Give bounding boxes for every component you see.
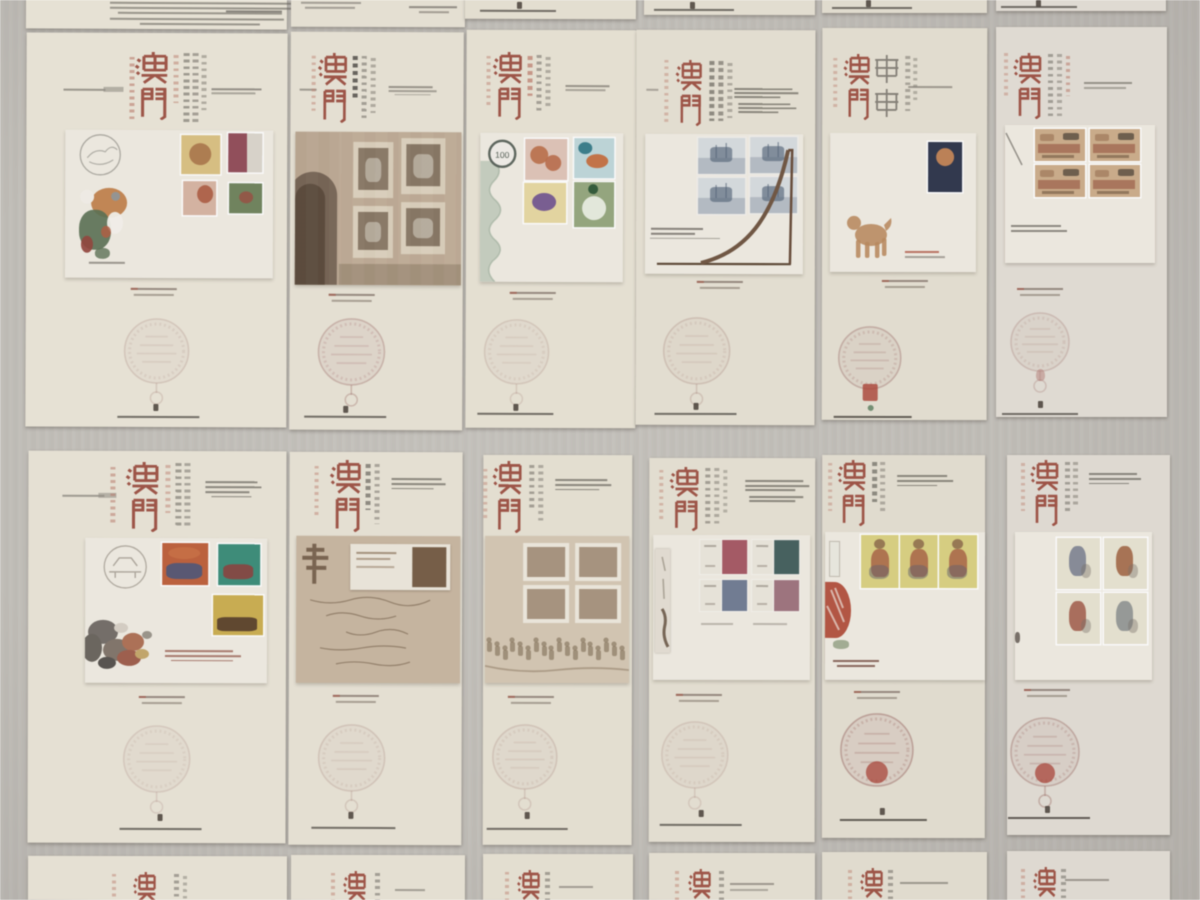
svg-text:100: 100 [495, 150, 509, 160]
